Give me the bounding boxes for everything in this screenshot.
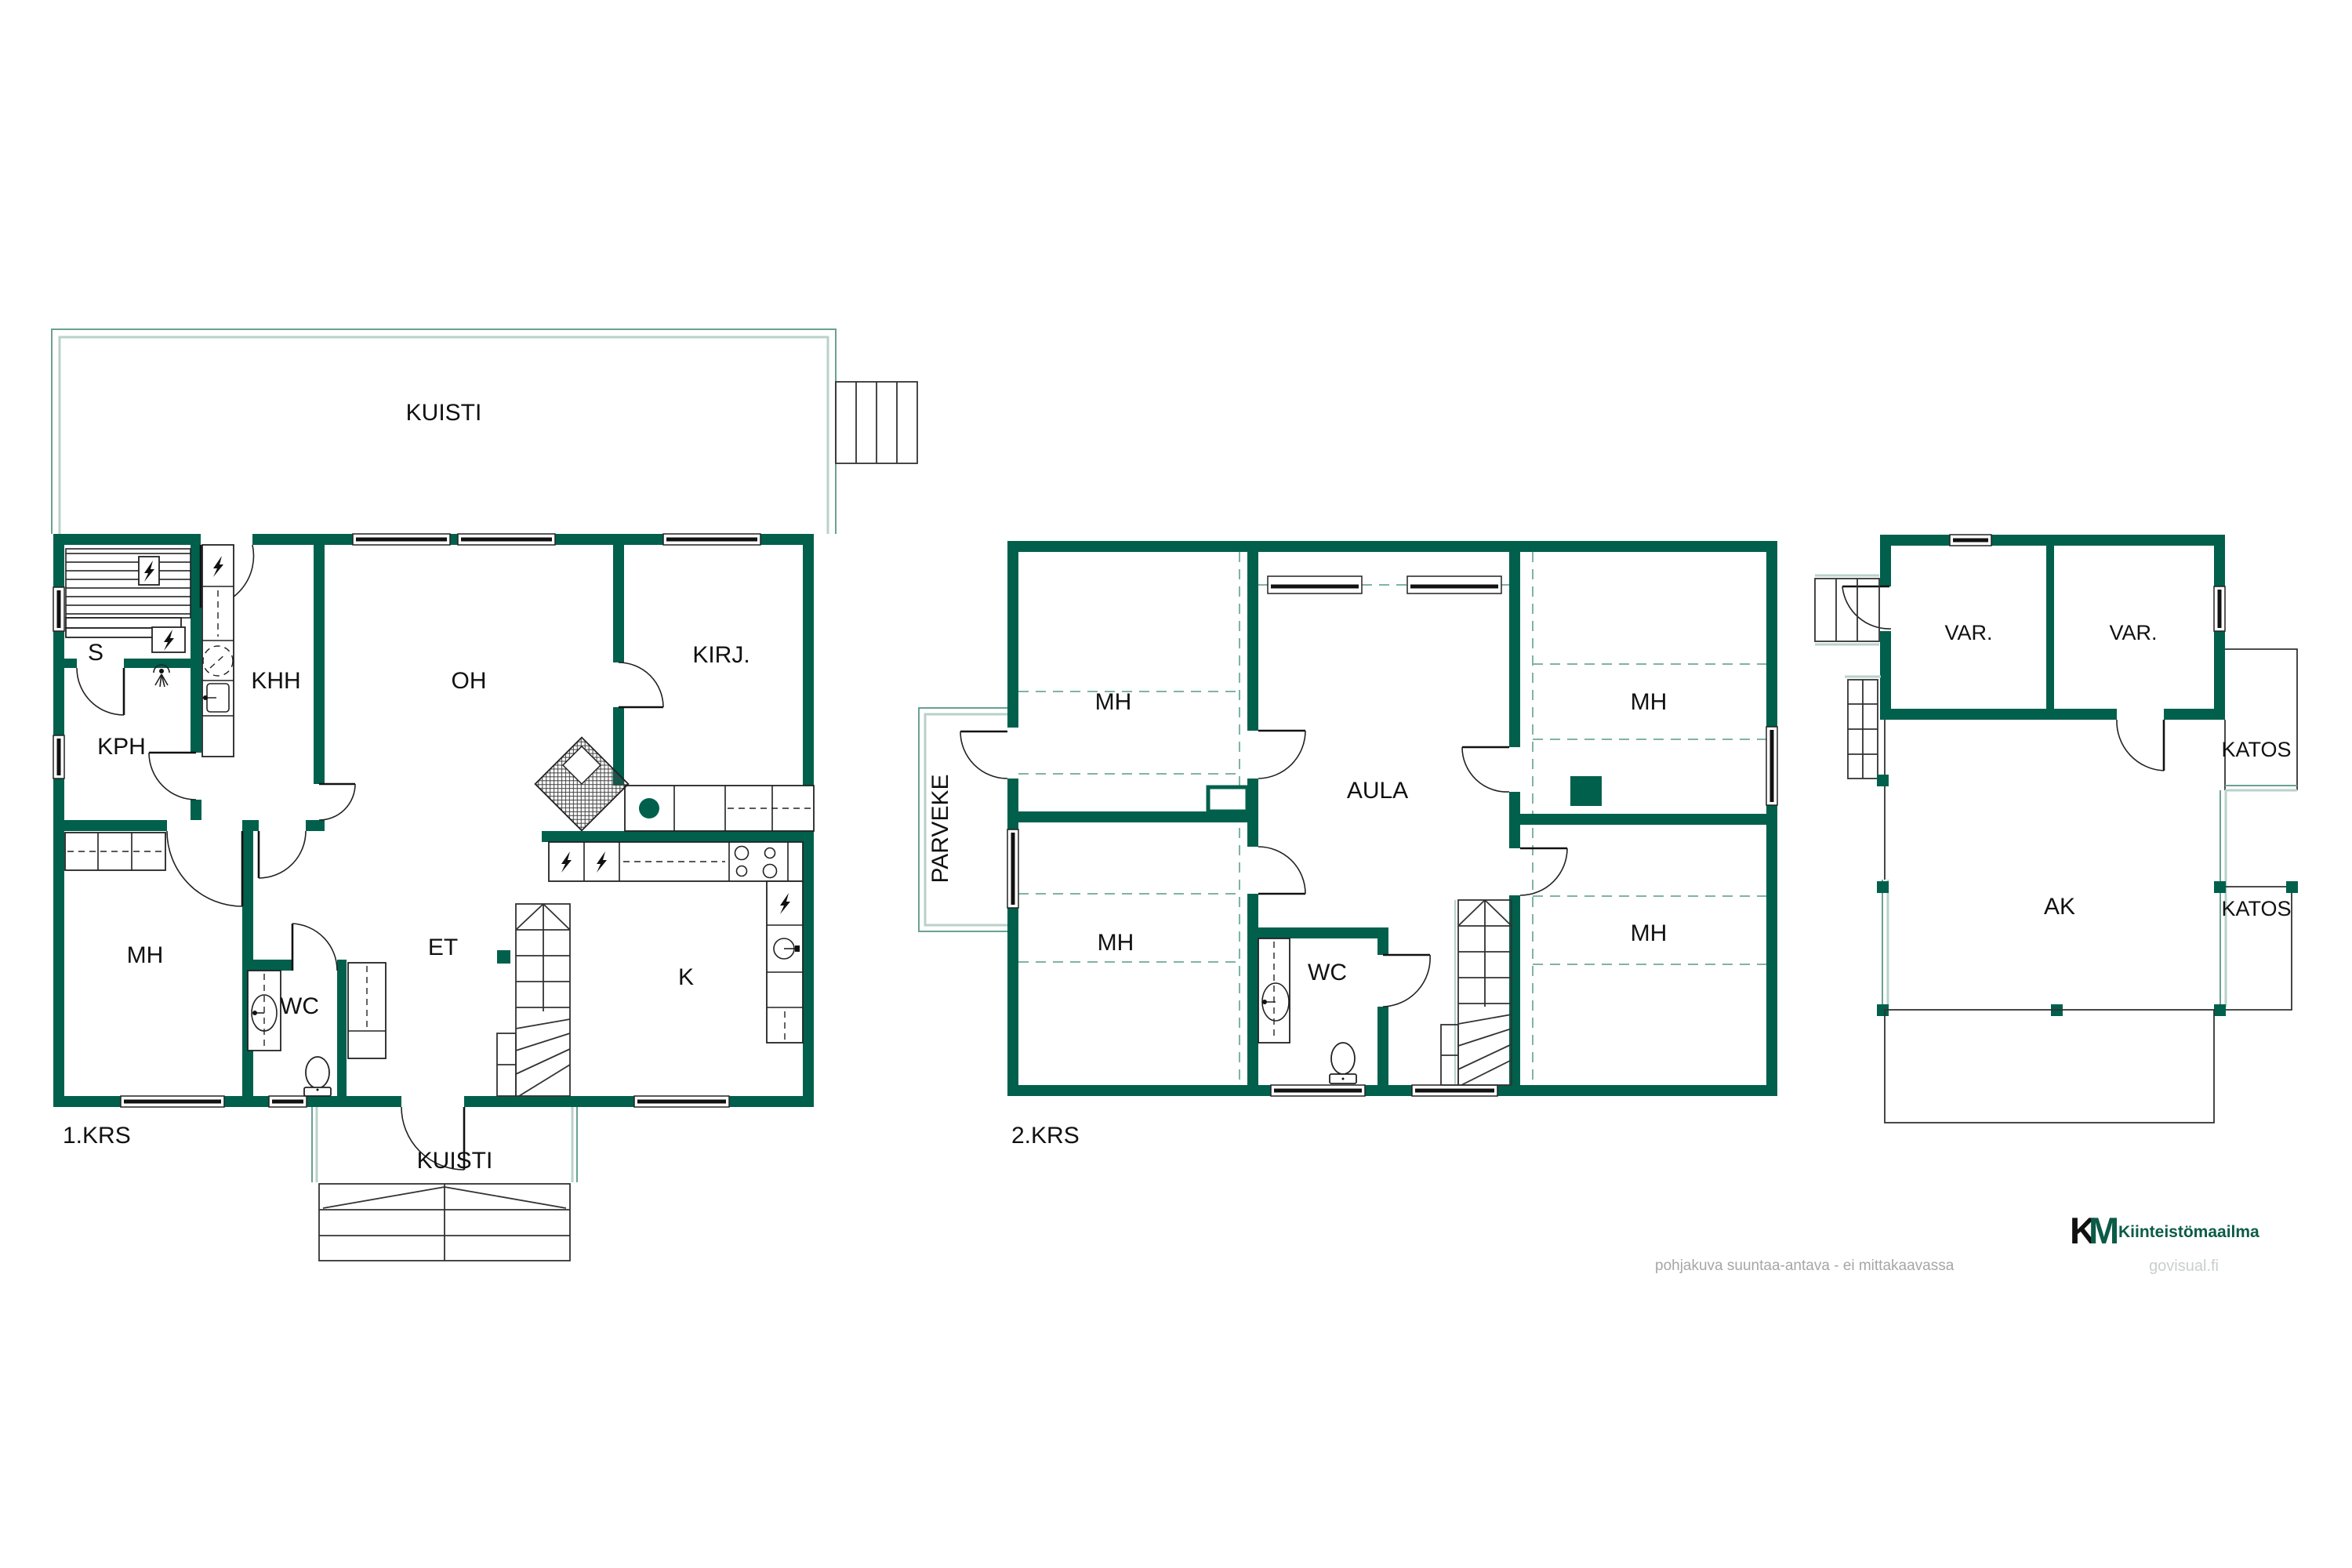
outbuilding-walls <box>1880 535 2225 720</box>
window <box>121 1096 224 1107</box>
wc-vanity <box>248 971 281 1051</box>
floor2-plan: PARVEKE MH MH AULA MH MH WC 2.KRS <box>919 541 1777 1149</box>
floor1-label: 1.KRS <box>63 1123 131 1149</box>
window <box>634 1096 729 1107</box>
window <box>353 534 450 545</box>
km-logo: K M Kiinteistömaailma <box>2070 1210 2259 1251</box>
stairs-floor2 <box>1441 900 1512 1085</box>
kirj-door <box>619 662 663 707</box>
var-right-door <box>2117 720 2164 771</box>
kitchen-counter-top <box>549 842 803 881</box>
room-label-oh: OH <box>452 668 487 694</box>
room-label-k: K <box>678 964 694 990</box>
terrace <box>1885 1010 2214 1123</box>
room-label-mh-bl: MH <box>1098 930 1134 956</box>
room-label-wc-floor1: WC <box>280 993 319 1019</box>
mh-br-door <box>1520 848 1567 895</box>
room-label-mh-tl: MH <box>1095 689 1132 715</box>
window <box>1766 727 1777 805</box>
room-label-kuisti-bottom: KUISTI <box>417 1148 493 1174</box>
hall-door <box>259 831 306 878</box>
electrical-panel-icon <box>152 627 185 652</box>
wc-door <box>292 924 337 971</box>
brand-name: Kiinteistömaailma <box>2118 1223 2259 1241</box>
chimney-floor2 <box>1570 776 1602 806</box>
outbuilding-steps-down <box>1845 677 1881 779</box>
wc2-door <box>1383 955 1430 1007</box>
room-label-var-left: VAR. <box>1944 621 1992 644</box>
toilet-icon <box>304 1057 331 1096</box>
porch-top-outline <box>52 329 836 534</box>
floor1-plan: KUISTI S KPH KHH OH KIRJ. MH WC ET K KUI… <box>52 329 917 1261</box>
chimney-floor1 <box>497 950 510 964</box>
et-wardrobe <box>348 963 386 1058</box>
porch-top-stairs <box>836 382 917 463</box>
stairs-floor1 <box>497 904 570 1096</box>
mh-tr-door <box>1462 747 1509 792</box>
kitchen-counter-right <box>767 881 803 1043</box>
khh-cabinets <box>202 545 234 757</box>
canopy-posts <box>1877 775 2298 1016</box>
room-label-aula: AULA <box>1347 778 1408 804</box>
window <box>1412 1085 1497 1096</box>
shower-icon <box>154 665 169 687</box>
floorplan-page: KUISTI S KPH KHH OH KIRJ. MH WC ET K KUI… <box>0 0 2352 1568</box>
room-label-parveke: PARVEKE <box>927 775 953 884</box>
floor2-label: 2.KRS <box>1011 1123 1080 1149</box>
floor2-windows <box>1007 576 1777 1096</box>
khh-door <box>319 784 355 820</box>
roof-window <box>1407 576 1501 593</box>
mh-tl-door <box>1258 731 1305 779</box>
room-label-mh-tr: MH <box>1631 689 1668 715</box>
floorplan-drawing: KUISTI S KPH KHH OH KIRJ. MH WC ET K KUI… <box>0 0 2352 1568</box>
logo-m: M <box>2089 1210 2119 1251</box>
room-label-wc-floor2: WC <box>1308 960 1347 985</box>
mh-bl-door <box>1258 847 1305 894</box>
room-label-et: ET <box>428 935 458 960</box>
outbuilding-plan: VAR. VAR. KATOS KATOS AK <box>1815 535 2298 1123</box>
var-left-door <box>1842 586 1891 629</box>
room-label-mh-br: MH <box>1631 920 1668 946</box>
outbuilding-windows <box>1950 535 2225 631</box>
window <box>53 587 64 631</box>
mh-closet <box>65 833 165 870</box>
window <box>458 534 555 545</box>
disclaimer-text: pohjakuva suuntaa-antava - ei mittakaava… <box>1655 1258 1955 1274</box>
sauna-door <box>77 668 124 715</box>
sauna-benches <box>66 549 191 637</box>
window <box>2214 586 2225 631</box>
window <box>1950 535 1991 546</box>
window <box>1007 829 1018 908</box>
kirj-counter <box>625 786 814 831</box>
room-label-katos-top: KATOS <box>2221 738 2291 761</box>
kph-door <box>149 753 196 800</box>
window <box>269 1096 307 1107</box>
room-label-s: S <box>88 640 103 666</box>
room-label-kuisti-top: KUISTI <box>406 400 482 426</box>
mh-door <box>167 831 242 906</box>
room-label-kph: KPH <box>97 734 146 760</box>
katos-top <box>2225 649 2297 790</box>
wc2-vanity <box>1258 938 1290 1043</box>
window <box>1271 1085 1365 1096</box>
website-text: govisual.fi <box>2149 1258 2219 1275</box>
room-label-var-right: VAR. <box>2109 621 2157 644</box>
room-label-kirj: KIRJ. <box>692 642 750 668</box>
ak-area <box>1882 720 2226 1007</box>
roof-window <box>1268 576 1362 593</box>
footer: pohjakuva suuntaa-antava - ei mittakaava… <box>1655 1210 2259 1275</box>
toilet-icon-floor2 <box>1330 1043 1356 1083</box>
porch-bottom-steps <box>319 1184 570 1261</box>
room-label-katos-bottom: KATOS <box>2221 897 2291 920</box>
room-label-khh: KHH <box>251 668 300 694</box>
sauna-heater-icon <box>139 557 159 585</box>
duct-niche <box>1208 787 1247 811</box>
balcony-door <box>960 731 1007 779</box>
room-label-mh-floor1: MH <box>127 942 164 968</box>
window <box>53 735 64 779</box>
room-label-ak: AK <box>2044 894 2075 920</box>
window <box>663 534 760 545</box>
